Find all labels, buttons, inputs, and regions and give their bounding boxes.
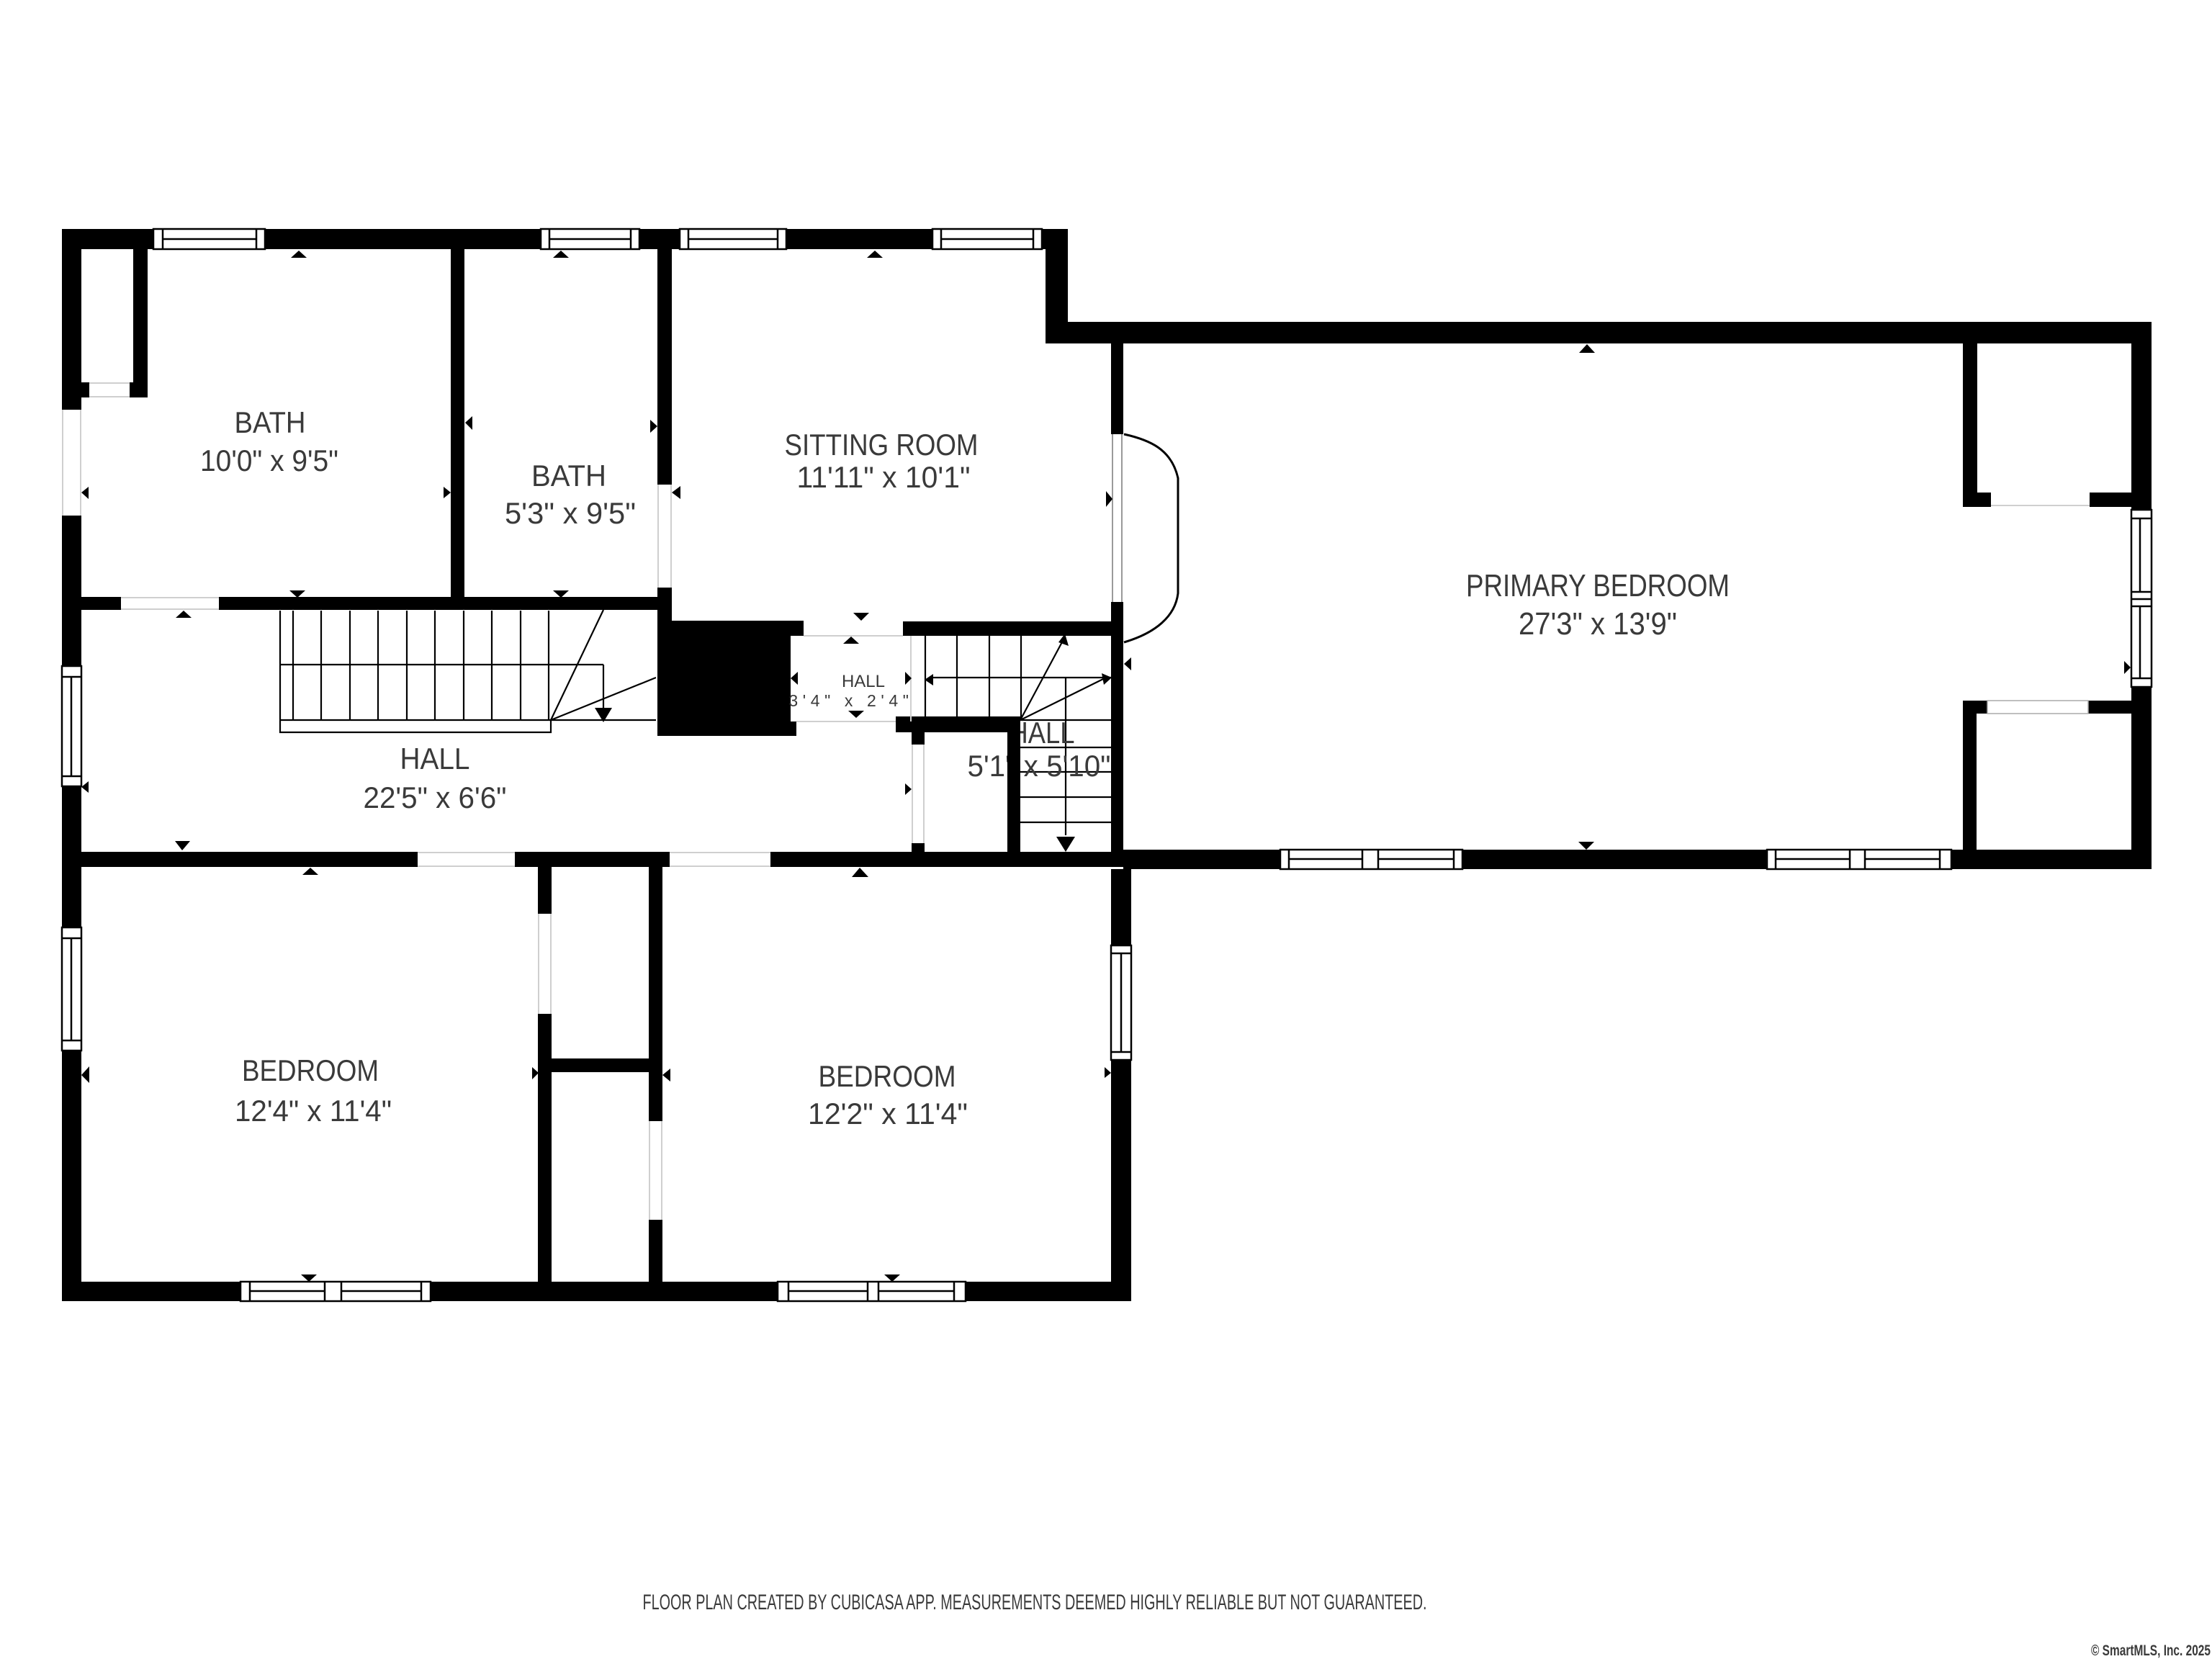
svg-text:BEDROOM: BEDROOM bbox=[242, 1053, 379, 1087]
svg-text:HALL: HALL bbox=[842, 672, 885, 691]
svg-text:12'4" x 11'4": 12'4" x 11'4" bbox=[235, 1094, 392, 1128]
svg-text:10'0" x 9'5": 10'0" x 9'5" bbox=[200, 444, 338, 477]
svg-text:SITTING ROOM: SITTING ROOM bbox=[785, 428, 979, 462]
svg-text:BATH: BATH bbox=[531, 459, 606, 493]
svg-text:11'11" x 10'1": 11'11" x 10'1" bbox=[797, 460, 971, 494]
svg-text:PRIMARY BEDROOM: PRIMARY BEDROOM bbox=[1466, 568, 1730, 603]
svg-text:27'3" x 13'9": 27'3" x 13'9" bbox=[1519, 606, 1677, 642]
svg-text:5'3" x 9'5": 5'3" x 9'5" bbox=[505, 496, 636, 530]
svg-text:3'4" x 2'4": 3'4" x 2'4" bbox=[788, 691, 913, 710]
svg-text:HALL: HALL bbox=[400, 742, 470, 775]
svg-text:12'2" x 11'4": 12'2" x 11'4" bbox=[808, 1097, 968, 1130]
svg-text:FLOOR PLAN CREATED BY CUBICASA: FLOOR PLAN CREATED BY CUBICASA APP. MEAS… bbox=[643, 1591, 1427, 1614]
svg-text:BEDROOM: BEDROOM bbox=[819, 1059, 956, 1093]
svg-text:BATH: BATH bbox=[235, 405, 306, 439]
svg-text:© SmartMLS, Inc. 2025: © SmartMLS, Inc. 2025 bbox=[2091, 1642, 2211, 1659]
svg-text:5'1" x 5'10": 5'1" x 5'10" bbox=[968, 749, 1111, 783]
svg-text:22'5" x 6'6": 22'5" x 6'6" bbox=[364, 781, 507, 814]
